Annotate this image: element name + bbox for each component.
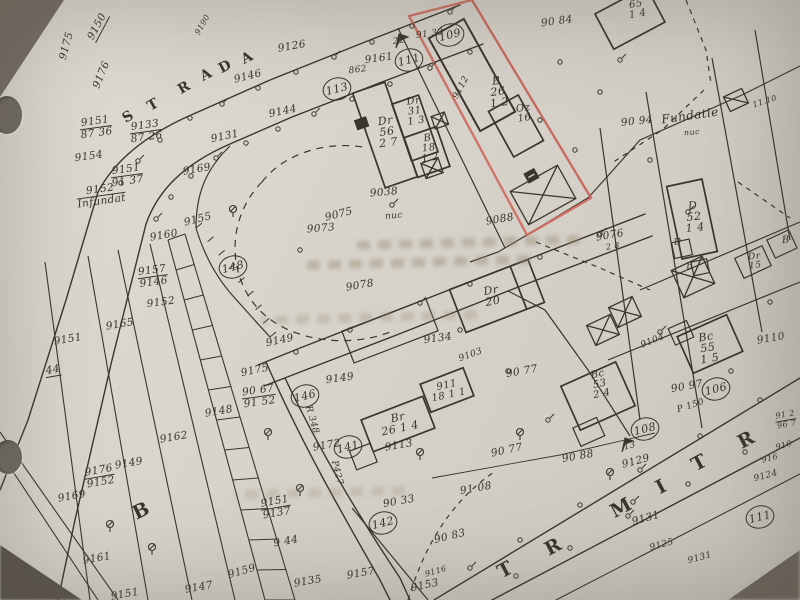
band-rung (192, 326, 212, 331)
band-rung (208, 387, 230, 391)
tree-symbol (297, 485, 304, 497)
survey-point-marker (638, 468, 642, 472)
survey-point-tick (316, 108, 320, 112)
garden-dashed-curve (235, 182, 395, 341)
band-rung (184, 295, 203, 300)
survey-point-marker (573, 148, 577, 152)
hedge-line (196, 228, 270, 337)
survey-point-marker (538, 255, 542, 259)
building-label: Oz16 (515, 103, 532, 125)
map-linework (0, 0, 800, 600)
parcel-label: 90 6791 52 (240, 383, 277, 411)
survey-point-tick (550, 414, 554, 418)
survey-point-tick (635, 496, 639, 500)
survey-point-tick (472, 562, 476, 566)
tree-symbol (517, 429, 524, 441)
survey-point-marker (298, 248, 302, 252)
building-label: B (686, 262, 694, 272)
survey-point-marker (388, 82, 392, 86)
survey-point-marker (276, 127, 280, 131)
tree-symbol (149, 544, 156, 556)
building-label: B (782, 236, 791, 247)
survey-point-marker (220, 102, 224, 106)
survey-point-marker (598, 90, 602, 94)
survey-point-marker (458, 328, 462, 332)
survey-point-tick (140, 155, 144, 159)
well-symbol (524, 169, 538, 183)
survey-point-marker (546, 418, 550, 422)
band-rung (233, 478, 259, 480)
hedge-tick (256, 305, 262, 310)
survey-point-marker (448, 10, 452, 14)
survey-point-marker (558, 60, 562, 64)
parcel-label: 9151 (110, 587, 140, 600)
survey-point-marker (244, 141, 248, 145)
survey-point-marker (370, 40, 374, 44)
parcel-boundaries (0, 0, 800, 600)
survey-point-marker (350, 97, 354, 101)
survey-point-marker (578, 503, 582, 507)
survey-point-marker (631, 500, 635, 504)
survey-point-marker (312, 112, 316, 116)
band-rung (200, 356, 221, 360)
survey-point-marker (428, 66, 432, 70)
building-label: Dr15 (748, 252, 762, 272)
band-rung (176, 265, 194, 271)
tree-symbol (230, 206, 237, 218)
survey-point-marker (729, 369, 733, 373)
tree-symbol (607, 469, 614, 481)
survey-point-marker (294, 350, 298, 354)
survey-point-marker (154, 217, 158, 221)
survey-point-marker (468, 566, 472, 570)
survey-point-marker (332, 55, 336, 59)
survey-point-marker (648, 158, 652, 162)
survey-point-marker (698, 434, 702, 438)
dashed-boundaries (235, 0, 790, 600)
building-label: D521 4 (683, 199, 705, 234)
hedge-ticks (196, 223, 276, 337)
survey-point-marker (618, 58, 622, 62)
cadastral-map-photo: 91509175917691909126914691449131915187 3… (0, 0, 800, 600)
parcel-label: 915187 36 (78, 114, 113, 142)
street-lines (0, 5, 800, 600)
mitr-road-edge-3 (556, 474, 800, 600)
survey-point-marker (169, 195, 173, 199)
survey-point-marker (390, 203, 394, 207)
parcel-label: 91 296 7 (774, 409, 798, 431)
survey-point-tick (394, 199, 398, 203)
survey-point-marker (294, 70, 298, 74)
hedge-tick (208, 237, 214, 242)
building-label: D (674, 238, 683, 248)
foundation-box (724, 89, 749, 112)
survey-point-marker (188, 116, 192, 120)
survey-point-marker (568, 546, 572, 550)
survey-point-tick (662, 326, 666, 330)
survey-point-tick (158, 213, 162, 217)
survey-point-tick (622, 54, 626, 58)
survey-point-marker (686, 482, 690, 486)
hedge-tick (263, 318, 269, 323)
tree-symbol (417, 449, 424, 461)
tree-symbol (107, 521, 114, 533)
survey-point-marker (768, 300, 772, 304)
band-rung (257, 570, 286, 571)
survey-point-marker (214, 156, 218, 160)
survey-point-marker (518, 538, 522, 542)
survey-point-marker (256, 86, 260, 90)
hedge-tick (219, 250, 225, 255)
parcel-label: nuc (684, 128, 701, 138)
tree-symbol (265, 429, 272, 441)
survey-point-marker (468, 50, 472, 54)
parcel-label: 91579146 (136, 263, 169, 291)
survey-point-marker (538, 118, 542, 122)
survey-point-symbols (107, 6, 773, 578)
parcel-label: nuc (385, 211, 404, 222)
building-label: 651 4 (627, 0, 648, 22)
band-rung (225, 448, 250, 451)
parcel-label: 22 (392, 36, 405, 47)
torn-corner-edge (0, 0, 62, 95)
